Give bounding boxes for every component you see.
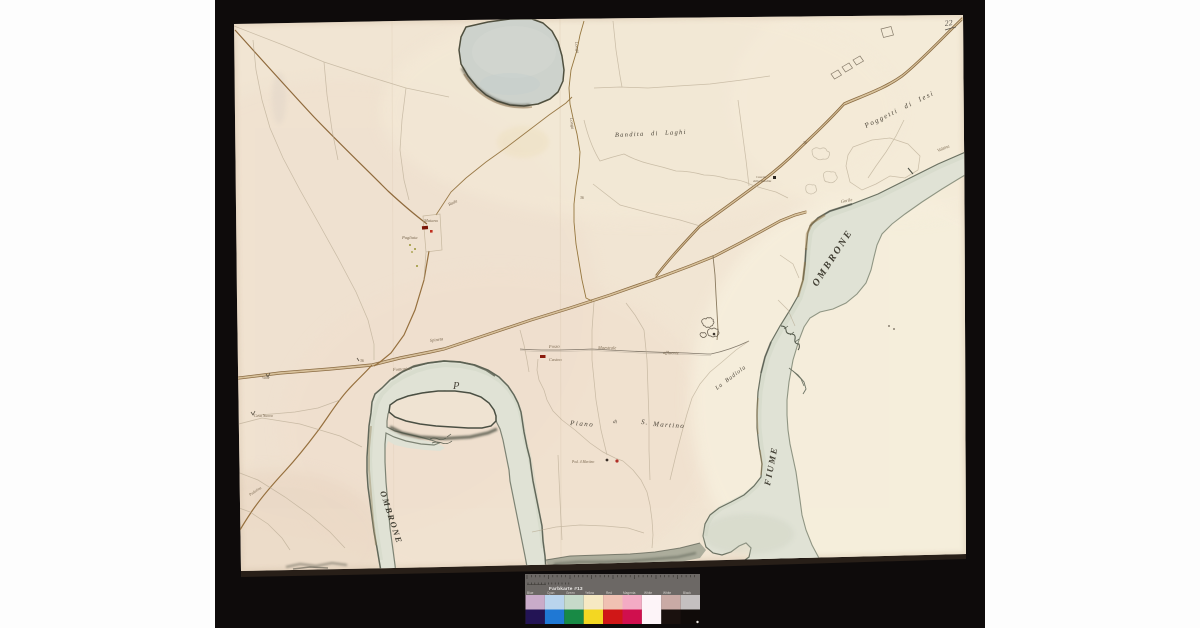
- svg-text:22: 22: [944, 18, 953, 28]
- svg-text:Pagliaia: Pagliaia: [401, 235, 418, 240]
- svg-text:Magenta: Magenta: [623, 591, 636, 595]
- svg-text:36: 36: [360, 359, 364, 363]
- svg-text:Casino: Casino: [549, 357, 563, 362]
- svg-text:White: White: [663, 591, 671, 595]
- svg-text:Pod. il Martino: Pod. il Martino: [571, 460, 594, 464]
- svg-text:Fontanino: Fontanino: [392, 366, 413, 372]
- svg-text:Maiano: Maiano: [423, 218, 439, 223]
- svg-text:Valle: Valle: [262, 376, 270, 380]
- svg-text:affluente: affluente: [663, 350, 679, 355]
- svg-text:Cyan: Cyan: [547, 591, 555, 595]
- svg-text:della Bandita: della Bandita: [753, 179, 772, 183]
- svg-text:Red: Red: [606, 591, 612, 595]
- svg-text:Green: Green: [566, 591, 575, 595]
- svg-text:Yellow: Yellow: [585, 591, 595, 595]
- svg-text:36: 36: [803, 141, 807, 145]
- svg-text:P: P: [452, 381, 460, 392]
- svg-text:Black: Black: [683, 591, 691, 595]
- svg-text:Blue: Blue: [527, 591, 534, 595]
- svg-text:S.: S.: [641, 418, 649, 426]
- svg-text:36: 36: [580, 196, 584, 200]
- svg-text:Casa Nuova: Casa Nuova: [254, 414, 273, 418]
- svg-text:Fosso: Fosso: [548, 344, 561, 349]
- svg-text:White: White: [644, 591, 652, 595]
- svg-text:Maestrale: Maestrale: [597, 345, 616, 350]
